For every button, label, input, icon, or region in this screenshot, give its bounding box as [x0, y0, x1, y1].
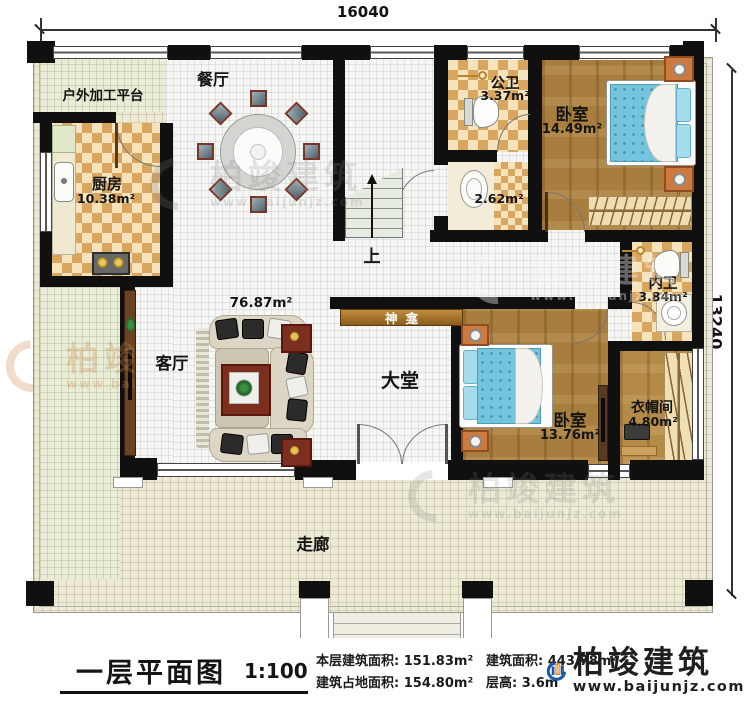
room-label-living: 客厅	[144, 350, 200, 374]
sofa-cushion	[246, 433, 270, 455]
porch-column	[462, 581, 493, 598]
toilet-tank	[464, 98, 473, 126]
window	[579, 46, 670, 59]
door-leaf	[545, 192, 548, 232]
pilaster	[113, 477, 143, 488]
room-area-bedroom2: 13.76m²	[534, 428, 606, 443]
wall	[528, 45, 542, 230]
stat-label: 建筑面积:	[486, 654, 543, 669]
wall	[333, 45, 345, 241]
wall	[26, 581, 54, 606]
brand-name: 柏竣建筑	[573, 648, 745, 679]
stairs-arrow-line	[371, 182, 373, 238]
title-block: 一层平面图 1:100 本层建筑面积: 151.83m² 建筑面积: 443.7…	[0, 638, 750, 705]
sofa-cushion	[242, 319, 264, 339]
nightstand	[461, 324, 489, 346]
bed1-blanket	[644, 84, 676, 162]
nightstand-knob	[469, 435, 482, 448]
towel-bar	[458, 75, 478, 77]
brand-url: www.baijunjz.com	[573, 679, 745, 695]
stat-label: 建筑占地面积:	[316, 676, 399, 691]
stat-value: 151.83m²	[404, 654, 473, 669]
bedroom1-wardrobe	[588, 196, 692, 226]
window	[692, 348, 704, 460]
wall	[40, 276, 173, 287]
room-area-kitchen: 10.38m²	[73, 191, 139, 206]
wall	[608, 341, 692, 351]
plant-on-cabinet	[126, 318, 135, 332]
room-label-corridor: 走廊	[284, 531, 342, 555]
brand-logo-icon	[545, 642, 567, 700]
room-area-cloakroom: 4.80m²	[628, 414, 678, 429]
bed2-pillow	[463, 386, 478, 420]
end-table-medallion	[290, 446, 299, 455]
dimension-ext	[715, 18, 717, 42]
tv-screen	[128, 350, 132, 400]
plan-title: 一层平面图	[62, 651, 240, 690]
room-area-wash: 2.62m²	[470, 191, 528, 206]
stat-footprint-area: 建筑占地面积: 154.80m²	[316, 672, 486, 694]
cloakroom-bench	[621, 446, 657, 456]
floor-plan-sheet: 16040 13240	[0, 0, 750, 705]
door-leaf	[115, 123, 118, 168]
sofa-cushion	[215, 318, 240, 341]
wall	[168, 45, 210, 60]
end-table-medallion	[290, 332, 299, 341]
entrance-opening	[356, 462, 448, 480]
wall	[434, 216, 448, 242]
dining-chair	[250, 196, 267, 213]
fridge	[52, 125, 76, 153]
nightstand	[664, 56, 694, 82]
towel-bar	[622, 250, 638, 252]
dining-chair	[197, 143, 214, 160]
dining-chair	[303, 143, 320, 160]
window	[53, 46, 168, 59]
bed1-pillow	[676, 88, 691, 122]
bed2-pillow	[463, 350, 478, 384]
stove-burner	[113, 257, 124, 268]
dimension-line-right	[731, 70, 733, 596]
dimension-ext	[40, 18, 42, 42]
wall	[448, 460, 588, 480]
coffee-table-plant	[235, 379, 253, 397]
kitchen-sink-faucet	[61, 178, 67, 184]
window	[157, 463, 295, 477]
wall	[585, 230, 692, 242]
side-walk	[40, 287, 120, 579]
sofa-cushion	[285, 375, 309, 399]
stat-label: 本层建筑面积:	[316, 654, 399, 669]
brand-text: 柏竣建筑 www.baijunjz.com	[573, 648, 745, 695]
plan-scale: 1:100	[244, 659, 306, 683]
shrine-label: 神龛	[377, 308, 426, 327]
door-leaf	[357, 424, 360, 464]
wall	[463, 297, 575, 309]
wall	[27, 41, 55, 63]
wall	[160, 123, 173, 276]
wall	[685, 580, 713, 606]
stairs-arrow-head	[367, 174, 377, 184]
dimension-line-top	[40, 29, 716, 31]
door-leaf	[445, 424, 448, 464]
pilaster	[483, 477, 513, 488]
room-area-living-dining: 76.87m²	[222, 295, 300, 311]
sofa-rug-fringe	[196, 328, 209, 448]
wall	[608, 349, 620, 480]
room-label-hall: 大堂	[368, 366, 432, 393]
nightstand	[461, 430, 489, 452]
wall	[448, 150, 497, 162]
room-label-dining: 餐厅	[186, 66, 240, 90]
shrine-cabinet: 神龛	[340, 309, 463, 326]
stat-floor-area: 本层建筑面积: 151.83m²	[316, 650, 486, 672]
room-area-bedroom1: 14.49m²	[537, 122, 607, 137]
brand-logo: 柏竣建筑 www.baijunjz.com	[545, 640, 745, 702]
stat-value: 154.80m²	[404, 676, 473, 691]
window	[210, 46, 302, 59]
nightstand-knob	[673, 173, 686, 186]
stat-label: 层高:	[486, 676, 517, 691]
title-underline	[60, 691, 308, 694]
wall	[434, 45, 448, 165]
porch-column	[299, 581, 330, 598]
room-area-public-bath: 3.37m²	[479, 88, 531, 103]
room-label-outdoor-platform: 户外加工平台	[42, 84, 164, 104]
stairs-up-label: 上	[358, 242, 386, 267]
stove-burner	[97, 257, 108, 268]
sofa-cushion	[286, 398, 308, 422]
vanity-basin-inner	[667, 306, 681, 320]
window	[40, 152, 52, 232]
sofa-cushion	[220, 433, 244, 456]
window	[370, 46, 438, 59]
room-area-inner-bath: 3.84m²	[637, 289, 689, 304]
dining-table-center	[250, 144, 266, 160]
nightstand	[664, 166, 694, 192]
sofa-cushion	[285, 350, 309, 375]
bed1-pillow	[676, 124, 691, 158]
living-floor-west	[133, 287, 173, 466]
nightstand-knob	[469, 329, 482, 342]
window	[467, 46, 524, 59]
pilaster	[303, 477, 333, 488]
nightstand-knob	[673, 63, 686, 76]
dimension-width: 16040	[318, 3, 408, 21]
dining-chair	[250, 90, 267, 107]
